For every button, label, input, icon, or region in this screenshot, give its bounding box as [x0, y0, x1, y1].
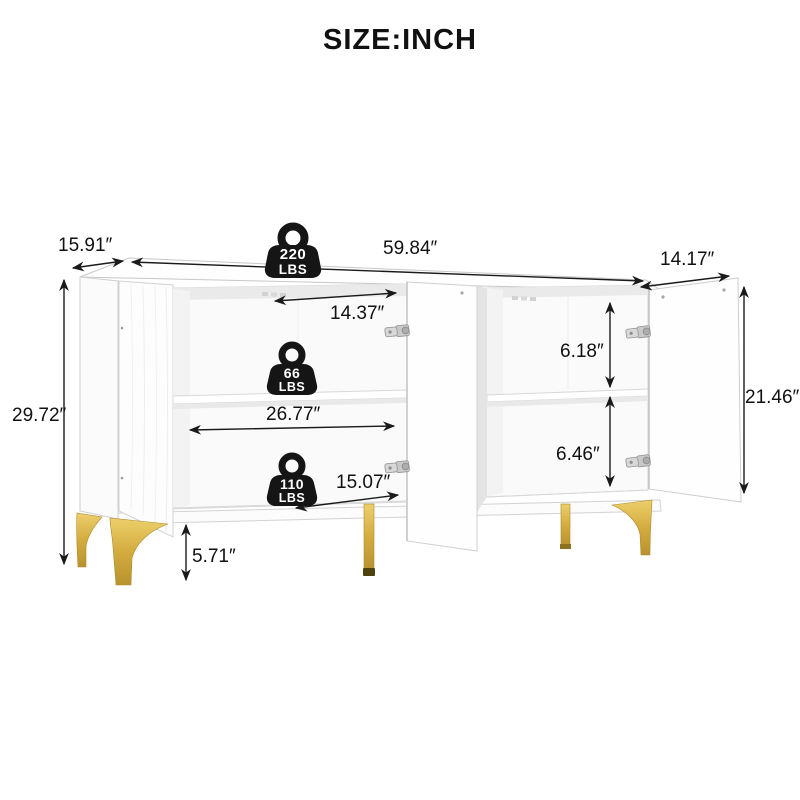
weight-unit: LBS — [266, 491, 318, 505]
dim-width-label: 59.84″ — [383, 238, 437, 260]
left-door-open — [119, 281, 173, 537]
cabinet-illustration — [0, 0, 800, 800]
dim-lower-compartment-label: 6.46″ — [556, 444, 600, 466]
weight-value: 66 — [266, 366, 318, 380]
dim-door-width-label: 14.17″ — [660, 249, 714, 271]
cabinet-left-side-panel — [80, 277, 118, 519]
product-dimension-diagram: SIZE:INCH — [0, 0, 800, 800]
weight-unit: LBS — [265, 262, 321, 277]
door-hinge-pin-dot — [121, 477, 124, 480]
dim-lower-opening-label: 15.07″ — [336, 472, 390, 494]
leg-back-right — [561, 504, 570, 546]
dim-shelf-width-label: 26.77″ — [266, 404, 320, 426]
dim-height-label: 29.72″ — [12, 405, 66, 427]
door-hinge-pin-dot — [121, 327, 124, 330]
weight-unit: LBS — [266, 380, 318, 394]
dim-upper-compartment-label: 6.18″ — [560, 341, 604, 363]
center-divider — [477, 286, 487, 512]
leg-middle — [364, 504, 374, 570]
door-screw-dot — [661, 295, 664, 298]
leg-back-left — [77, 513, 102, 567]
middle-door-open — [407, 282, 477, 551]
dim-interior-height-label: 21.46″ — [745, 387, 799, 409]
door-screw-dot — [460, 291, 463, 294]
dim-upper-opening-label: 14.37″ — [330, 303, 384, 325]
weight-capacity-badge-bottom: 110 LBS — [266, 477, 318, 505]
weight-value: 220 — [265, 247, 321, 262]
weight-value: 110 — [266, 477, 318, 491]
dim-depth-label: 15.91″ — [58, 235, 112, 257]
dim-leg-height-label: 5.71″ — [192, 546, 236, 568]
door-screw-dot — [722, 288, 725, 291]
weight-capacity-badge-top: 220 LBS — [265, 247, 321, 277]
right-door-open — [649, 278, 741, 502]
weight-capacity-badge-shelf: 66 LBS — [266, 366, 318, 394]
